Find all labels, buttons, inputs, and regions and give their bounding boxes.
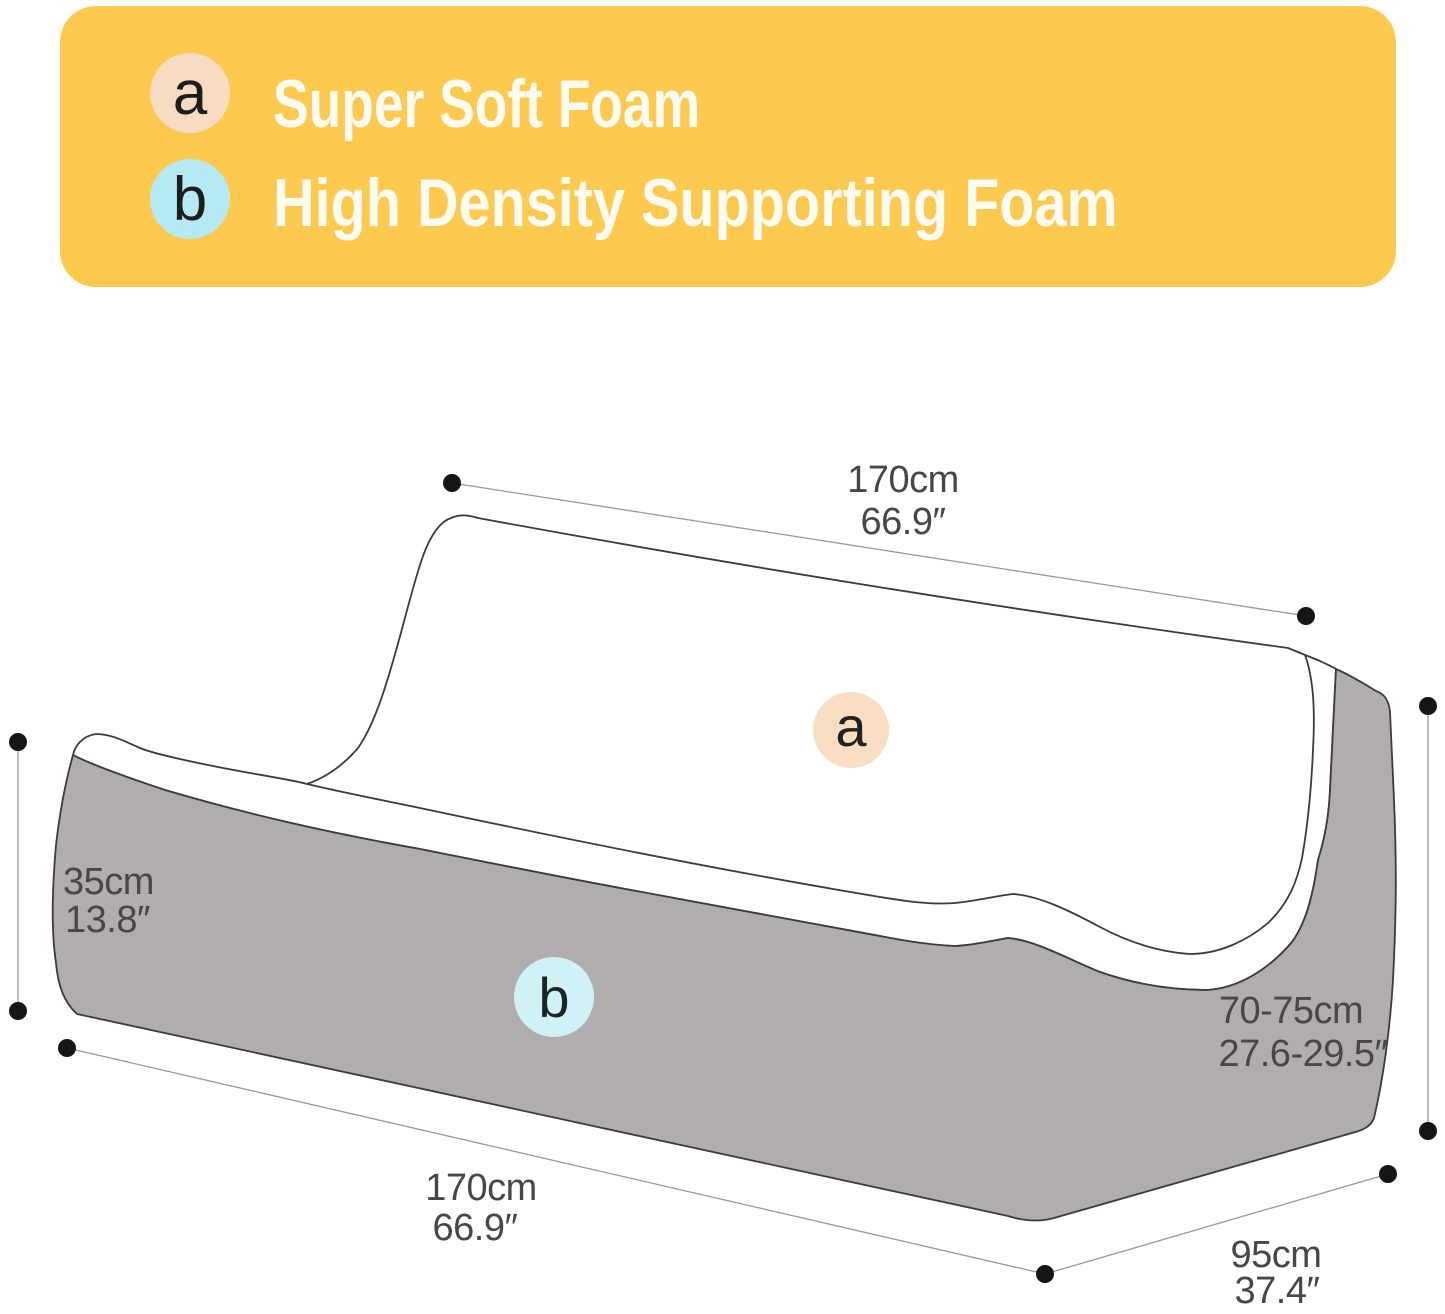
svg-text:a: a [835, 695, 867, 758]
svg-text:66.9″: 66.9″ [433, 1207, 518, 1249]
svg-text:66.9″: 66.9″ [861, 501, 946, 543]
svg-text:35cm: 35cm [63, 861, 154, 903]
svg-text:13.8″: 13.8″ [65, 899, 150, 941]
svg-text:37.4″: 37.4″ [1235, 1270, 1320, 1312]
svg-text:27.6-29.5″: 27.6-29.5″ [1218, 1033, 1387, 1075]
svg-text:70-75cm: 70-75cm [1219, 990, 1363, 1032]
svg-text:170cm: 170cm [847, 459, 959, 501]
svg-text:b: b [538, 966, 569, 1029]
svg-text:170cm: 170cm [425, 1167, 537, 1209]
